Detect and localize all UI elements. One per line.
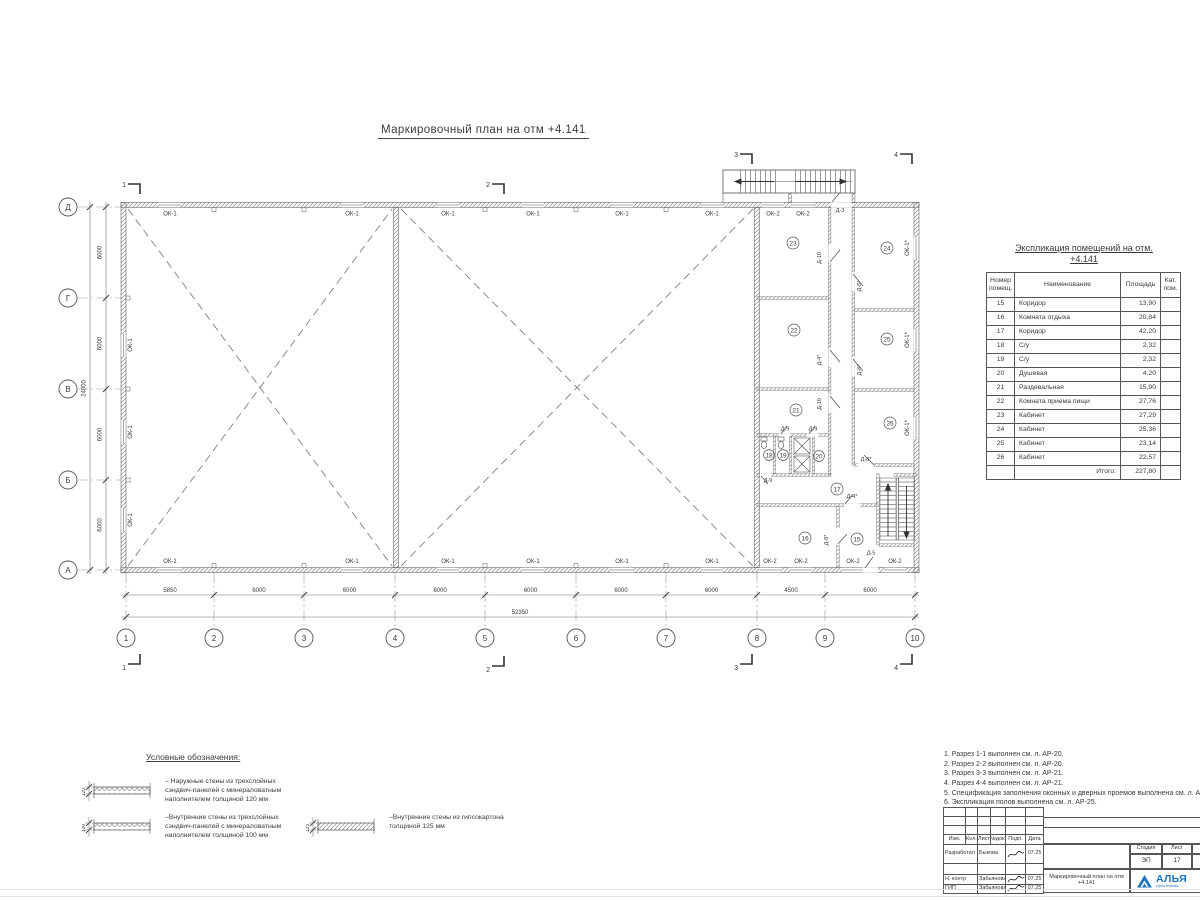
dim-total-label: 52350 (512, 610, 529, 616)
tb-signature-cell (1006, 845, 1026, 864)
note-item: 4. Разрез 4-4 выполнен см. л. АР-21. (944, 779, 1200, 789)
window-label: ОК-1 (526, 212, 540, 218)
cell-name: Кабинет (1015, 409, 1121, 423)
window-label: ОК-1* (905, 239, 911, 255)
cell-area: 4,20 (1121, 367, 1161, 381)
cell-num: 24 (987, 423, 1015, 437)
window-label: ОК-1 (128, 425, 134, 439)
door-label: Д-8* (824, 534, 830, 546)
tb-sheet-value: 17 (1162, 854, 1192, 869)
explication-title-line2: +4.141 (1070, 254, 1098, 264)
cell-area: 27,76 (1121, 395, 1161, 409)
cell-area: 13,90 (1121, 297, 1161, 311)
window-label: ОК-1 (163, 559, 177, 565)
tb-sheets-value (1192, 854, 1200, 869)
dim-label: 6000 (863, 588, 877, 594)
table-row: 16Комната отдыха20,84 (987, 311, 1181, 325)
explication-title-line1: Экспликация помещений на отм. (1015, 243, 1153, 253)
cell-kat (1161, 451, 1181, 465)
cell-kat (1161, 381, 1181, 395)
window-label: ОК-2 (794, 559, 808, 565)
axis-bubble-label: 1 (124, 634, 129, 643)
logo-text: АЛЬЯ (1156, 874, 1187, 885)
col-header: Номер помещ. (987, 272, 1015, 297)
col-header: Кат. пом. (1161, 272, 1181, 297)
legend-item: 125 –Внутренние стены из гипсокартона то… (306, 814, 507, 842)
cell-name: Кабинет (1015, 423, 1121, 437)
tb-role-cell: Разработал (944, 845, 978, 864)
dim-label: 4500 (784, 588, 798, 594)
cell-num: 16 (987, 311, 1015, 325)
explication-block: Экспликация помещений на отм. +4.141 Ном… (986, 243, 1182, 480)
tb-stage-value: ЭП (1130, 854, 1162, 869)
tb-signature-cell (1006, 875, 1026, 885)
cell-area: 42,20 (1121, 325, 1161, 339)
window-label: ОК-2 (763, 559, 777, 565)
cell-kat (1161, 325, 1181, 339)
window-label: ОК-1* (905, 331, 911, 347)
table-row: 18С/у2,32 (987, 339, 1181, 353)
grid-bubbles: 1 2 3 4 5 6 7 8 9 10 Д Г В Б А (59, 198, 924, 647)
logo-subtext: строительная (1156, 885, 1187, 889)
axis-bubble-label: Г (66, 294, 71, 303)
cell-area: 15,90 (1121, 381, 1161, 395)
cell-num: 20 (987, 367, 1015, 381)
door-label: Д-9 (764, 478, 773, 484)
table-row: 25Кабинет23,14 (987, 437, 1181, 451)
dim-label: 6000 (98, 336, 104, 350)
cell-area: 2,32 (1121, 339, 1161, 353)
tb-date-cell: 07.25 (1026, 845, 1044, 864)
room-number: 21 (792, 408, 800, 415)
table-row: 21Раздевальная15,90 (987, 381, 1181, 395)
room-number: 26 (886, 421, 894, 428)
shower-cabins (794, 438, 810, 472)
window-label: ОК-1* (905, 419, 911, 435)
cell-kat (1161, 395, 1181, 409)
cell-kat (1161, 409, 1181, 423)
axis-bubble-label: 4 (393, 634, 398, 643)
cell-name: Комната отдыха (1015, 311, 1121, 325)
axis-lines (77, 207, 915, 629)
tb-stage-label: Стадия (1130, 844, 1162, 854)
table-row: 19С/у2,32 (987, 353, 1181, 367)
tb-header-cell: Лист (978, 835, 991, 845)
cell-kat (1161, 465, 1181, 479)
section-label: 3 (734, 665, 738, 672)
tb-sheets-label (1192, 844, 1200, 854)
note-item: 3. Разрез 3-3 выполнен см. л. АР-21. (944, 769, 1200, 779)
window-label: ОК-1 (705, 559, 719, 565)
legend-item-text: –Внутренние стены из гипсокартона толщин… (389, 814, 507, 832)
table-row: 15Коридор13,90 (987, 297, 1181, 311)
cell-kat (1161, 339, 1181, 353)
window-label: ОК-1 (345, 559, 359, 565)
window-label: ОК-2 (846, 559, 860, 565)
legend-item-text: –Внутренние стены из трехслойных сэндвич… (165, 814, 291, 840)
doors (760, 189, 878, 573)
total-value: 227,80 (1121, 465, 1161, 479)
explication-table: Номер помещ. Наименование Площадь Кат. п… (986, 272, 1181, 480)
section-label: 4 (894, 665, 898, 672)
cell-kat (1161, 353, 1181, 367)
section-label: 4 (894, 152, 898, 159)
door-label: Д-9 (809, 427, 818, 433)
legend-dim-label: 100 (82, 824, 87, 833)
cell-num: 25 (987, 437, 1015, 451)
window-label: ОК-1 (615, 212, 629, 218)
dim-label: 6000 (433, 588, 447, 594)
cell-name: Коридор (1015, 325, 1121, 339)
external-stair (723, 170, 855, 203)
dim-label: 6000 (614, 588, 628, 594)
cell-name: С/у (1015, 353, 1121, 367)
window-label: ОК-2 (766, 212, 780, 218)
legend-dim-label: 125 (306, 824, 311, 833)
room-number: 20 (815, 454, 823, 461)
title-block: Изм. Кол. Лист №док. Подп. Дата Разработ… (943, 807, 1200, 893)
tb-header-cell: Подп. (1006, 835, 1026, 845)
cell-num: 22 (987, 395, 1015, 409)
page-title: Маркировочный план на отм +4.141 (378, 124, 589, 139)
section-label: 1 (122, 182, 126, 189)
cell-name: С/у (1015, 339, 1121, 353)
door-label: Д-4* (817, 354, 823, 366)
axis-bubble-label: 5 (483, 634, 488, 643)
table-total-row: Итого:227,80 (987, 465, 1181, 479)
dim-label: 6000 (98, 245, 104, 259)
total-label: Итого: (1015, 465, 1121, 479)
door-label: Д-5 (867, 551, 876, 557)
dim-label: 6000 (98, 518, 104, 532)
door-label: Д-3 (836, 208, 845, 214)
window-label: ОК-1 (441, 212, 455, 218)
window-label: ОК-1 (526, 559, 540, 565)
gypsum-wall-symbol-icon: 125 (306, 814, 381, 842)
inner-wall-symbol-icon: 100 (82, 814, 157, 842)
hall-diagonals (128, 209, 753, 566)
dim-label: 5850 (163, 588, 177, 594)
section-label: 1 (122, 665, 126, 672)
room-number: 19 (779, 453, 787, 460)
axis-bubble-label: 9 (823, 634, 828, 643)
door-label: Д-8* (861, 457, 873, 463)
cell-area: 22,57 (1121, 451, 1161, 465)
cell-kat (1161, 423, 1181, 437)
cell-empty (987, 465, 1015, 479)
legend-dim-label: 120 (82, 788, 87, 797)
cell-name: Кабинет (1015, 437, 1121, 451)
note-item: 1. Разрез 1-1 выполнен см. л. АР-20. (944, 750, 1200, 760)
room-number: 16 (801, 536, 809, 543)
door-label: Д-9 (781, 427, 790, 433)
axis-bubble-label: 8 (755, 634, 760, 643)
axis-bubble-label: В (65, 385, 70, 394)
tb-header-cell: Изм. (944, 835, 966, 845)
dim-label: 6000 (524, 588, 538, 594)
room-number: 15 (853, 537, 861, 544)
table-row: 17Коридор42,20 (987, 325, 1181, 339)
legend-title: Условные обозначения: (146, 752, 240, 762)
table-row: 26Кабинет22,57 (987, 451, 1181, 465)
table-row: 20Душевая4,20 (987, 367, 1181, 381)
section-label: 3 (734, 152, 738, 159)
window-label: ОК-1 (345, 212, 359, 218)
window-label: ОК-1 (441, 559, 455, 565)
title-block-left-grid: Изм. Кол. Лист №док. Подп. Дата Разработ… (943, 807, 1044, 894)
window-label: ОК-2 (888, 559, 902, 565)
cell-num: 21 (987, 381, 1015, 395)
axis-bubble-label: 3 (302, 634, 307, 643)
outer-wall-symbol-icon: 120 (82, 778, 157, 806)
axis-bubble-label: Б (65, 476, 70, 485)
tb-date-cell: 07.25 (1026, 875, 1044, 885)
door-label: Д-8* (857, 364, 863, 376)
axis-bubble-label: 6 (574, 634, 579, 643)
axis-bubble-label: 10 (911, 634, 920, 643)
tb-header-cell: №док. (991, 835, 1006, 845)
cell-area: 23,14 (1121, 437, 1161, 451)
cell-name: Душевая (1015, 367, 1121, 381)
tb-role-cell: Н. контр (944, 875, 978, 885)
sheet-edge-line (0, 896, 1200, 897)
note-item: 2. Разрез 2-2 выполнен см. л. АР-20. (944, 760, 1200, 770)
drawing-sheet: { "drawing": { "title": "Маркировочный п… (0, 0, 1200, 900)
tb-header-cell: Кол. (966, 835, 978, 845)
window-label: ОК-1 (615, 559, 629, 565)
tb-designation-cell (1043, 817, 1200, 844)
window-label: ОК-1 (128, 338, 134, 352)
window-label: ОК-1 (163, 212, 177, 218)
note-item: 5. Спецификация заполнения оконных и две… (944, 789, 1200, 799)
legend-item-text: – Наружные стены из трехслойных сэндвич-… (165, 778, 291, 804)
cell-area: 2,32 (1121, 353, 1161, 367)
dim-label: 6000 (252, 588, 266, 594)
legend-item: 120 – Наружные стены из трехслойных сэнд… (82, 778, 291, 806)
axis-bubble-label: 2 (212, 634, 217, 643)
section-label: 2 (486, 667, 490, 674)
room-number: 24 (883, 246, 891, 253)
room-number: 18 (765, 453, 773, 460)
tb-name-cell: Забьянова (978, 875, 1006, 885)
cell-kat (1161, 437, 1181, 451)
cell-area: 20,84 (1121, 311, 1161, 325)
cell-kat (1161, 297, 1181, 311)
notes-list: 1. Разрез 1-1 выполнен см. л. АР-20. 2. … (944, 750, 1200, 808)
axis-bubble-label: 7 (664, 634, 669, 643)
internal-stair (880, 478, 915, 540)
room-number: 17 (833, 487, 841, 494)
legend-item: 100 –Внутренние стены из трехслойных сэн… (82, 814, 291, 842)
cell-kat (1161, 367, 1181, 381)
door-label: Д-10 (817, 252, 823, 264)
explication-title: Экспликация помещений на отм. +4.141 (986, 243, 1182, 266)
cell-name: Раздевальная (1015, 381, 1121, 395)
cell-num: 26 (987, 451, 1015, 465)
signature-icon (1007, 875, 1025, 884)
tb-divider (1043, 827, 1200, 828)
tb-header-cell: Дата (1026, 835, 1044, 845)
door-label: Д-8* (857, 280, 863, 292)
cell-num: 17 (987, 325, 1015, 339)
cell-area: 27,29 (1121, 409, 1161, 423)
cell-area: 25,36 (1121, 423, 1161, 437)
window-label: ОК-1 (705, 212, 719, 218)
room-number: 22 (790, 328, 798, 335)
cell-num: 23 (987, 409, 1015, 423)
cell-num: 18 (987, 339, 1015, 353)
table-header-row: Номер помещ. Наименование Площадь Кат. п… (987, 272, 1181, 297)
door-label: Д-4* (847, 494, 859, 500)
table-row: 23Кабинет27,29 (987, 409, 1181, 423)
window-label: ОК-1 (128, 513, 134, 527)
tb-sheet-label: Лист (1162, 844, 1192, 854)
col-header: Наименование (1015, 272, 1121, 297)
cell-kat (1161, 311, 1181, 325)
cell-name: Кабинет (1015, 451, 1121, 465)
door-label: Д-10 (817, 398, 823, 410)
tb-name-cell: Быкова (978, 845, 1006, 864)
axis-bubble-label: А (65, 566, 71, 575)
window-label: ОК-2 (796, 212, 810, 218)
cell-num: 19 (987, 353, 1015, 367)
cell-name: Комната приема пищи (1015, 395, 1121, 409)
dim-total-label: 24000 (82, 379, 88, 396)
table-row: 24Кабинет25,36 (987, 423, 1181, 437)
sheet-edge-line (0, 889, 1200, 890)
section-label: 2 (486, 182, 490, 189)
dim-label: 6000 (343, 588, 357, 594)
tb-empty-cell (1043, 844, 1130, 869)
room-number: 23 (789, 241, 797, 248)
signature-icon (1007, 850, 1025, 859)
cell-name: Коридор (1015, 297, 1121, 311)
col-header: Площадь (1121, 272, 1161, 297)
table-row: 22Комната приема пищи27,76 (987, 395, 1181, 409)
company-logo-icon (1136, 874, 1153, 889)
axis-bubble-label: Д (65, 203, 71, 212)
dim-label: 6000 (705, 588, 719, 594)
dim-label: 6000 (98, 427, 104, 441)
room-number: 25 (883, 337, 891, 344)
cell-num: 15 (987, 297, 1015, 311)
